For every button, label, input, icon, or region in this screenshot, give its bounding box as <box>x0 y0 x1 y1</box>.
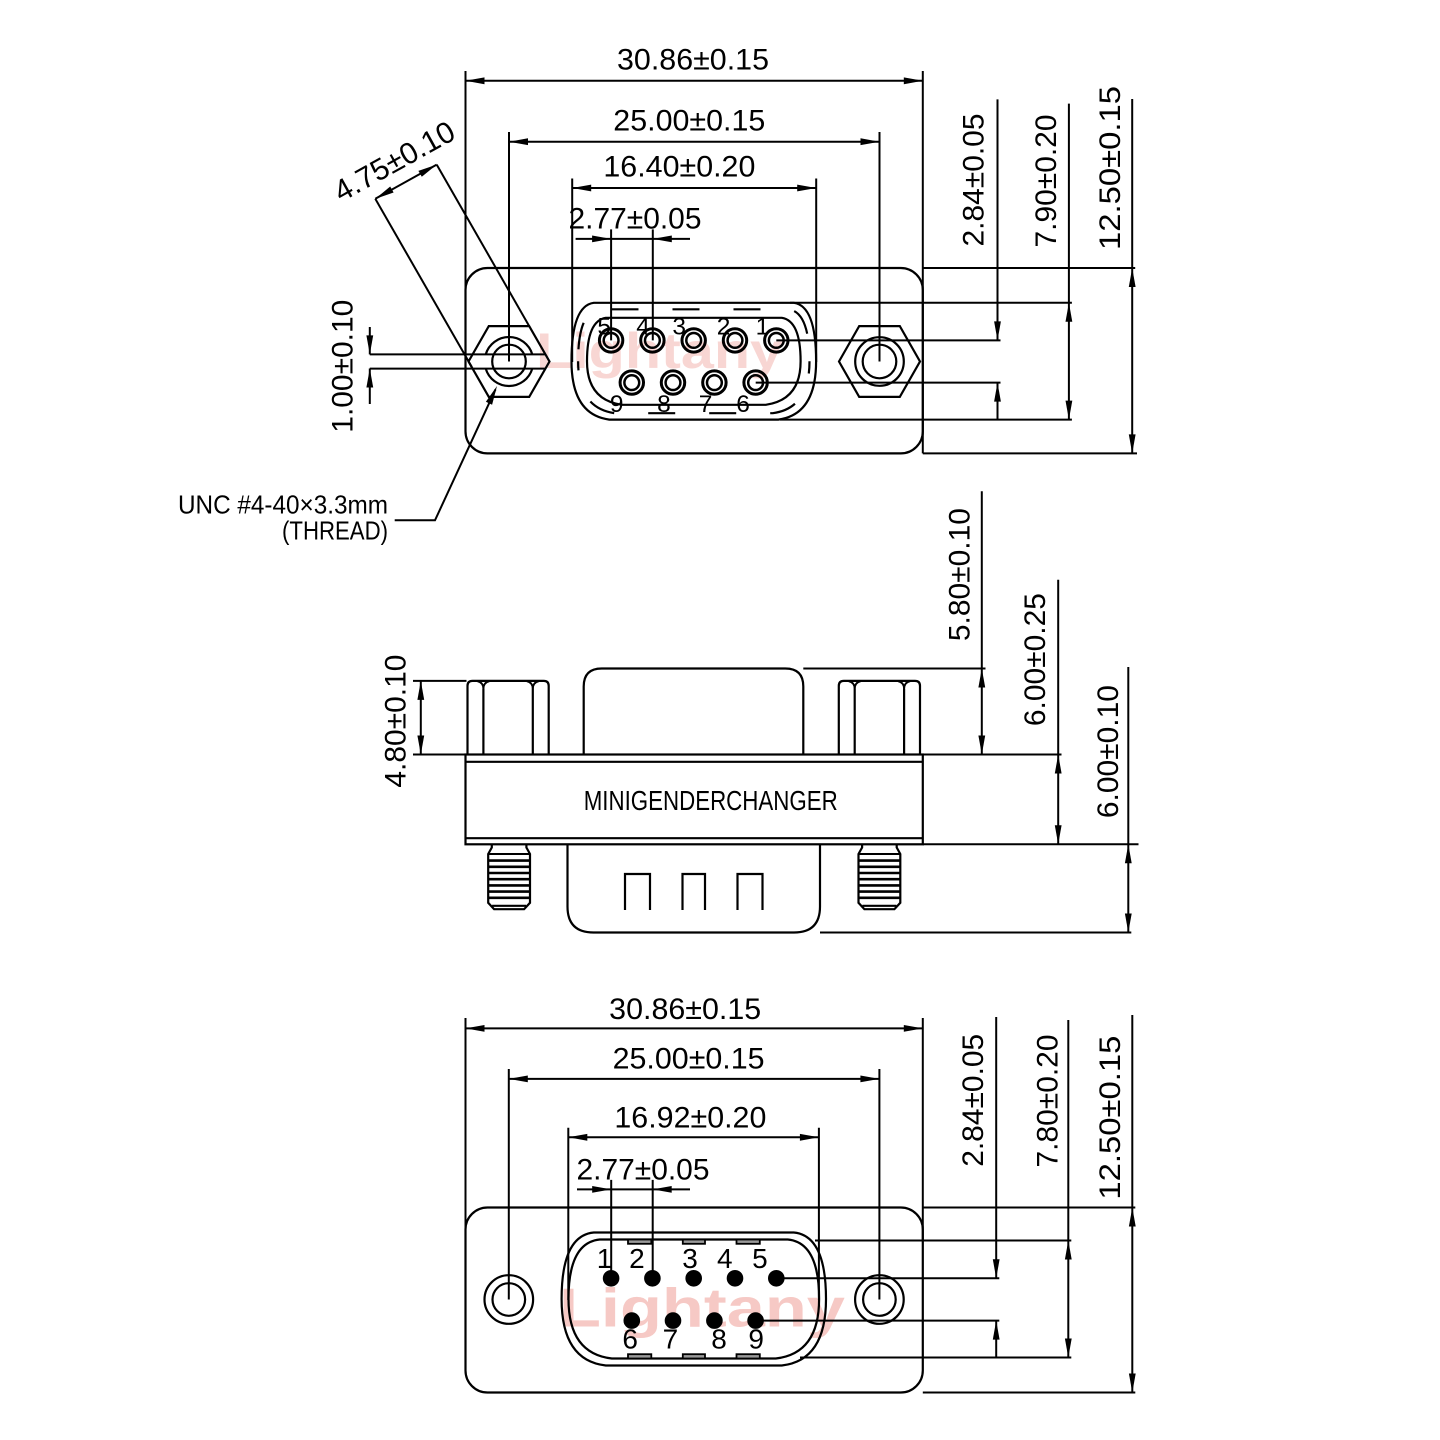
svg-text:7.80±0.20: 7.80±0.20 <box>1031 1035 1064 1168</box>
svg-text:2.77±0.05: 2.77±0.05 <box>569 202 702 235</box>
svg-text:6.00±0.25: 6.00±0.25 <box>1019 593 1052 726</box>
svg-text:1: 1 <box>756 313 770 340</box>
svg-text:4: 4 <box>717 1243 733 1274</box>
svg-text:6: 6 <box>736 391 750 418</box>
svg-text:12.50±0.15: 12.50±0.15 <box>1094 1036 1127 1200</box>
svg-text:6.00±0.10: 6.00±0.10 <box>1092 685 1125 818</box>
svg-text:25.00±0.15: 25.00±0.15 <box>613 1043 765 1076</box>
svg-text:2.77±0.05: 2.77±0.05 <box>577 1154 710 1187</box>
svg-text:1: 1 <box>597 1243 613 1274</box>
svg-text:16.40±0.20: 16.40±0.20 <box>603 151 755 184</box>
svg-text:(THREAD): (THREAD) <box>282 516 388 546</box>
svg-text:9: 9 <box>748 1323 764 1354</box>
svg-text:3: 3 <box>682 1243 698 1274</box>
svg-text:5: 5 <box>597 313 611 340</box>
svg-text:4: 4 <box>636 313 650 340</box>
svg-text:4.80±0.10: 4.80±0.10 <box>379 655 412 788</box>
svg-text:7.90±0.20: 7.90±0.20 <box>1030 115 1063 248</box>
svg-text:6: 6 <box>622 1323 638 1354</box>
svg-text:2.84±0.05: 2.84±0.05 <box>958 114 991 247</box>
svg-text:8: 8 <box>711 1323 727 1354</box>
svg-text:2.84±0.05: 2.84±0.05 <box>957 1034 990 1167</box>
svg-text:30.86±0.15: 30.86±0.15 <box>617 44 769 77</box>
svg-text:1.00±0.10: 1.00±0.10 <box>327 300 360 433</box>
svg-text:Lightany: Lightany <box>559 1277 845 1339</box>
svg-text:12.50±0.15: 12.50±0.15 <box>1094 86 1127 250</box>
svg-text:3: 3 <box>672 313 686 340</box>
svg-text:25.00±0.15: 25.00±0.15 <box>613 105 765 138</box>
svg-text:30.86±0.15: 30.86±0.15 <box>609 993 761 1026</box>
svg-text:2: 2 <box>629 1243 645 1274</box>
svg-text:MINIGENDERCHANGER: MINIGENDERCHANGER <box>584 785 838 816</box>
svg-text:7: 7 <box>663 1323 679 1354</box>
svg-text:5.80±0.10: 5.80±0.10 <box>944 508 977 641</box>
svg-text:8: 8 <box>657 391 671 418</box>
svg-text:5: 5 <box>752 1243 768 1274</box>
svg-text:7: 7 <box>699 391 713 418</box>
svg-text:9: 9 <box>610 391 624 418</box>
svg-text:16.92±0.20: 16.92±0.20 <box>614 1101 766 1134</box>
svg-text:2: 2 <box>717 313 731 340</box>
